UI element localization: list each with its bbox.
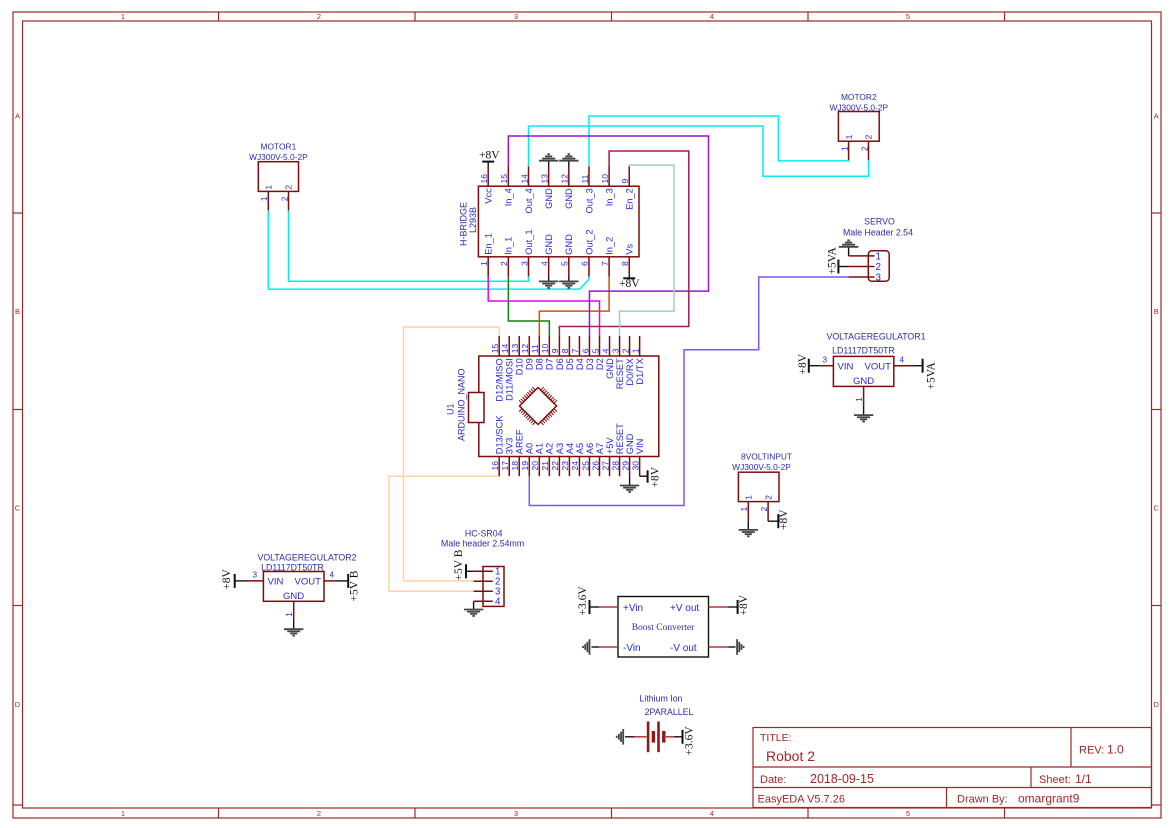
svg-text:B: B <box>1154 307 1159 316</box>
svg-text:H-BRIDGE: H-BRIDGE <box>459 202 469 246</box>
svg-text:23: 23 <box>560 461 570 471</box>
svg-text:-V out: -V out <box>670 643 697 654</box>
svg-text:29: 29 <box>620 461 630 471</box>
svg-text:+Vin: +Vin <box>623 603 643 614</box>
svg-text:7: 7 <box>570 348 580 353</box>
svg-text:EasyEDA V5.7.26: EasyEDA V5.7.26 <box>758 794 845 806</box>
svg-text:24: 24 <box>570 461 580 471</box>
svg-text:Drawn By:: Drawn By: <box>957 794 1008 806</box>
svg-text:25: 25 <box>580 461 590 471</box>
svg-text:GND: GND <box>564 188 574 209</box>
svg-text:VOUT: VOUT <box>865 362 892 373</box>
svg-text:15: 15 <box>499 174 509 184</box>
svg-text:11: 11 <box>580 174 590 183</box>
svg-text:D1/TX: D1/TX <box>635 358 645 384</box>
svg-text:Vcc: Vcc <box>484 188 494 204</box>
svg-text:1: 1 <box>121 809 125 818</box>
svg-text:WJ300V-5.0-2P: WJ300V-5.0-2P <box>732 462 791 472</box>
svg-text:D10: D10 <box>515 358 525 375</box>
svg-text:VIN: VIN <box>268 577 284 588</box>
svg-text:2: 2 <box>317 809 321 818</box>
svg-text:GND: GND <box>564 234 574 255</box>
svg-text:4: 4 <box>330 571 335 580</box>
svg-text:3: 3 <box>610 348 620 353</box>
svg-text:SERVO: SERVO <box>864 216 895 226</box>
svg-text:WJ300V-5.0-2P: WJ300V-5.0-2P <box>249 152 308 162</box>
svg-text:+8V: +8V <box>797 353 809 374</box>
svg-text:D0/RX: D0/RX <box>625 358 635 385</box>
svg-text:16: 16 <box>479 174 489 184</box>
svg-text:3: 3 <box>253 571 258 580</box>
svg-text:2: 2 <box>876 262 881 273</box>
svg-text:Sheet:: Sheet: <box>1039 774 1071 786</box>
svg-text:MOTOR1: MOTOR1 <box>261 141 297 151</box>
svg-text:Lithium Ion: Lithium Ion <box>639 694 682 704</box>
svg-text:2: 2 <box>499 261 509 266</box>
svg-text:GND: GND <box>605 358 615 379</box>
svg-text:A6: A6 <box>585 443 595 454</box>
svg-text:1: 1 <box>840 146 849 151</box>
svg-text:18: 18 <box>510 461 520 471</box>
svg-text:+5V B: +5V B <box>349 570 361 601</box>
svg-text:In_3: In_3 <box>605 188 615 206</box>
svg-text:9: 9 <box>550 348 560 353</box>
svg-text:Out_1: Out_1 <box>524 229 534 254</box>
svg-text:GND: GND <box>283 591 304 602</box>
svg-text:En_2: En_2 <box>625 188 635 210</box>
svg-text:12: 12 <box>520 343 530 353</box>
svg-text:1: 1 <box>630 348 640 353</box>
svg-text:27: 27 <box>600 461 610 471</box>
svg-text:En_1: En_1 <box>484 233 494 255</box>
svg-text:D13/SCK: D13/SCK <box>495 415 505 455</box>
svg-text:L293B: L293B <box>468 207 478 233</box>
svg-text:1.0: 1.0 <box>1107 743 1124 757</box>
svg-text:Out_2: Out_2 <box>584 229 594 254</box>
svg-text:5: 5 <box>560 261 570 266</box>
svg-text:LD1117DT50TR: LD1117DT50TR <box>832 345 895 355</box>
svg-text:A5: A5 <box>575 443 585 454</box>
svg-text:Male header 2.54mm: Male header 2.54mm <box>441 539 524 549</box>
svg-text:VIN: VIN <box>635 439 645 455</box>
svg-text:4: 4 <box>600 348 610 353</box>
svg-text:1: 1 <box>264 185 274 190</box>
svg-text:GND: GND <box>853 376 874 387</box>
svg-text:A1: A1 <box>535 443 545 454</box>
svg-text:2: 2 <box>317 12 321 21</box>
svg-text:1: 1 <box>260 196 269 201</box>
svg-text:1: 1 <box>844 134 854 139</box>
svg-text:6: 6 <box>580 348 590 353</box>
svg-text:11: 11 <box>530 344 540 353</box>
svg-text:2018-09-15: 2018-09-15 <box>810 772 874 786</box>
svg-text:16: 16 <box>490 461 500 471</box>
svg-text:+8V: +8V <box>778 509 790 530</box>
svg-text:VOLTAGEREGULATOR2: VOLTAGEREGULATOR2 <box>257 552 356 562</box>
svg-text:D: D <box>15 700 21 709</box>
svg-text:D: D <box>1153 700 1159 709</box>
svg-text:26: 26 <box>590 461 600 471</box>
svg-text:10: 10 <box>540 343 550 353</box>
svg-text:8VOLTINPUT: 8VOLTINPUT <box>741 452 792 462</box>
svg-text:+5V B: +5V B <box>453 549 465 580</box>
svg-text:22: 22 <box>550 461 560 471</box>
svg-text:HC-SR04: HC-SR04 <box>465 528 503 538</box>
svg-text:+5VA: +5VA <box>925 361 937 389</box>
svg-text:RESET: RESET <box>615 358 625 389</box>
svg-text:2: 2 <box>620 348 630 353</box>
svg-text:13: 13 <box>539 174 549 184</box>
svg-text:1/1: 1/1 <box>1075 772 1092 786</box>
svg-text:-Vin: -Vin <box>623 643 641 654</box>
svg-text:GND: GND <box>625 433 635 454</box>
svg-text:Date:: Date: <box>760 774 786 786</box>
svg-text:A4: A4 <box>565 443 575 454</box>
svg-text:D5: D5 <box>565 358 575 370</box>
svg-text:+5VA: +5VA <box>826 246 838 274</box>
svg-text:Out_4: Out_4 <box>524 188 534 213</box>
svg-text:2: 2 <box>280 196 289 201</box>
svg-text:D8: D8 <box>535 358 545 370</box>
svg-text:5: 5 <box>906 809 910 818</box>
svg-text:3: 3 <box>514 12 518 21</box>
svg-text:+8V: +8V <box>650 466 662 487</box>
svg-text:MOTOR2: MOTOR2 <box>841 92 877 102</box>
svg-text:1: 1 <box>855 397 864 402</box>
svg-text:A: A <box>1154 112 1159 121</box>
svg-text:2: 2 <box>284 185 294 190</box>
svg-text:VOUT: VOUT <box>295 577 322 588</box>
svg-text:A7: A7 <box>595 443 605 454</box>
svg-text:D9: D9 <box>525 358 535 370</box>
svg-text:2: 2 <box>864 134 874 139</box>
svg-text:17: 17 <box>500 461 510 471</box>
svg-text:A0: A0 <box>525 443 535 454</box>
svg-text:3: 3 <box>519 261 529 266</box>
svg-text:In_1: In_1 <box>504 237 514 255</box>
svg-text:AREF: AREF <box>515 429 525 454</box>
svg-text:20: 20 <box>530 461 540 471</box>
svg-text:13: 13 <box>510 343 520 353</box>
svg-text:GND: GND <box>544 188 554 209</box>
svg-text:6: 6 <box>580 261 590 266</box>
svg-text:+8V: +8V <box>221 568 233 589</box>
svg-text:1: 1 <box>740 506 749 511</box>
svg-text:4: 4 <box>710 12 714 21</box>
svg-text:omargrant9: omargrant9 <box>1018 792 1080 806</box>
svg-text:19: 19 <box>520 461 530 471</box>
svg-text:D3: D3 <box>585 358 595 370</box>
svg-text:+8V: +8V <box>479 150 500 162</box>
svg-text:In_2: In_2 <box>605 237 615 255</box>
svg-text:A: A <box>15 112 20 121</box>
svg-text:14: 14 <box>519 174 529 184</box>
svg-text:3: 3 <box>823 356 828 365</box>
svg-text:D7: D7 <box>545 358 555 370</box>
svg-text:Vs: Vs <box>625 244 635 255</box>
svg-text:28: 28 <box>610 461 620 471</box>
svg-text:C: C <box>1153 504 1159 513</box>
svg-text:+5V: +5V <box>605 437 615 455</box>
svg-text:12: 12 <box>560 174 570 184</box>
svg-text:C: C <box>15 504 21 513</box>
svg-text:4: 4 <box>710 809 714 818</box>
svg-text:1: 1 <box>876 251 881 262</box>
svg-text:+8V: +8V <box>619 278 640 290</box>
svg-text:VOLTAGEREGULATOR1: VOLTAGEREGULATOR1 <box>826 331 925 341</box>
svg-text:Boost Converter: Boost Converter <box>632 623 695 633</box>
svg-text:B: B <box>15 307 20 316</box>
svg-text:ARDUINO_NANO: ARDUINO_NANO <box>457 368 467 441</box>
svg-text:3: 3 <box>514 809 518 818</box>
svg-text:D2: D2 <box>595 358 605 370</box>
svg-text:4: 4 <box>495 597 501 608</box>
svg-text:2: 2 <box>763 495 773 500</box>
svg-text:5: 5 <box>906 12 910 21</box>
svg-text:REV:: REV: <box>1079 745 1104 757</box>
svg-text:3: 3 <box>876 272 882 283</box>
svg-text:9: 9 <box>620 179 630 184</box>
svg-text:Robot 2: Robot 2 <box>766 748 815 764</box>
svg-text:15: 15 <box>490 343 500 353</box>
svg-text:30: 30 <box>630 461 640 471</box>
svg-text:A3: A3 <box>555 443 565 454</box>
svg-text:1: 1 <box>285 612 294 617</box>
svg-text:10: 10 <box>600 174 610 184</box>
svg-text:U1: U1 <box>446 403 456 415</box>
svg-text:1: 1 <box>121 12 125 21</box>
svg-text:GND: GND <box>544 234 554 255</box>
svg-text:2: 2 <box>860 146 869 151</box>
svg-text:+V out: +V out <box>670 603 699 614</box>
svg-text:Out_3: Out_3 <box>584 188 594 213</box>
svg-text:+8V: +8V <box>738 594 750 615</box>
svg-text:2: 2 <box>760 506 769 511</box>
svg-text:+3.6V: +3.6V <box>683 726 695 756</box>
svg-text:RESET: RESET <box>615 423 625 454</box>
svg-text:A2: A2 <box>545 443 555 454</box>
svg-text:TITLE:: TITLE: <box>760 732 792 744</box>
svg-text:In_4: In_4 <box>504 188 514 206</box>
svg-text:21: 21 <box>540 461 550 471</box>
svg-text:2PARALLEL: 2PARALLEL <box>645 707 694 717</box>
svg-text:4: 4 <box>900 356 905 365</box>
svg-text:1: 1 <box>479 261 489 266</box>
svg-text:8: 8 <box>560 348 570 353</box>
svg-text:D11/MOSI: D11/MOSI <box>505 358 515 401</box>
svg-text:8: 8 <box>620 261 630 266</box>
svg-text:7: 7 <box>600 261 610 266</box>
svg-text:D4: D4 <box>575 358 585 370</box>
svg-text:Male Header 2.54: Male Header 2.54 <box>843 227 913 237</box>
svg-text:14: 14 <box>500 343 510 353</box>
svg-text:D6: D6 <box>555 358 565 370</box>
svg-text:VIN: VIN <box>838 362 854 373</box>
svg-text:1: 1 <box>744 495 754 500</box>
svg-text:D12/MISO: D12/MISO <box>495 358 505 401</box>
svg-text:+3.6V: +3.6V <box>577 586 589 616</box>
svg-text:3V3: 3V3 <box>505 438 515 455</box>
svg-text:5: 5 <box>590 348 600 353</box>
svg-text:4: 4 <box>539 261 549 266</box>
